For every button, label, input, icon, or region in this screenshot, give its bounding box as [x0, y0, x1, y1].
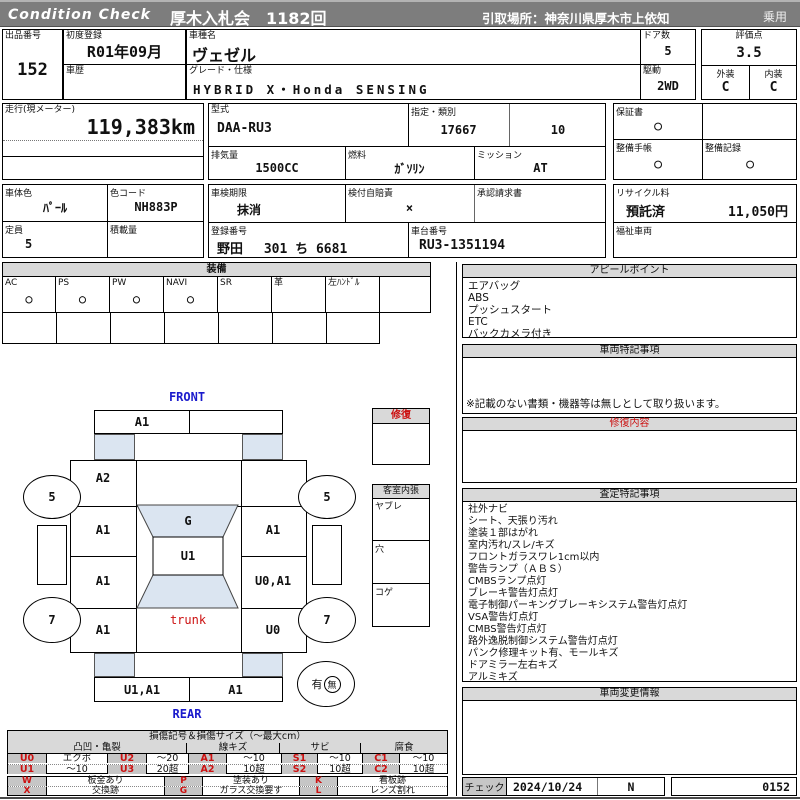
equipment-table: 装備 AC ○ PS ○ PW ○ NAVI ○ SR 革 左ﾊﾝﾄﾞﾙ: [2, 262, 431, 344]
cabin-row-burn: コゲ: [373, 584, 429, 626]
model-name-label: 車種名: [189, 31, 216, 41]
first-registration: R01年09月: [64, 39, 185, 64]
legend-code: U1: [8, 765, 47, 774]
equip-col-pw: PW ○: [110, 277, 164, 313]
front-bumper-left-marks: A1: [95, 411, 189, 433]
damage-legend-table: 損傷記号＆損傷サイズ（～最大cm） 凸凹・亀裂 線キズ サビ 腐食 U0 エクボ…: [7, 730, 448, 774]
legend-group-rust: サビ: [280, 743, 361, 753]
load-label: 積載量: [110, 223, 137, 236]
inspection: 抹消: [237, 201, 261, 218]
doors: 5: [641, 38, 695, 64]
equipment-title: 装備: [2, 262, 431, 277]
transmission: AT: [474, 158, 607, 178]
legend-desc: ガラス交換要す: [203, 787, 300, 795]
legend-desc: 交換跡: [47, 787, 165, 795]
capacity-label: 定員: [5, 223, 23, 236]
appeal-item: ETC: [468, 316, 488, 328]
auction-condition-sheet: Condition Check 厚木入札会 1182回 引取場所：神奈川県厚木市…: [0, 0, 800, 800]
first-registration-cell: 初度登録 R01年09月: [63, 29, 186, 65]
legend-desc: 板金あり: [47, 777, 165, 786]
legend-desc: 20超: [147, 765, 189, 774]
repair-detail-body: [463, 431, 796, 435]
cabin-row-label: コゲ: [375, 585, 393, 598]
equip-value: ○: [3, 285, 55, 312]
wheel-rear-right: 7: [298, 597, 356, 643]
lot-number-cell: 出品番号 152: [2, 29, 63, 100]
model-name-cell: 車種名 ヴェゼル: [186, 29, 641, 65]
legend-desc: エクボ: [47, 754, 108, 763]
auction-venue: 厚木入札会 1182回: [170, 5, 327, 29]
lot-number: 152: [3, 40, 62, 99]
equip-value: [272, 285, 325, 312]
equip-value: [218, 285, 271, 312]
header-bar: Condition Check 厚木入札会 1182回 引取場所：神奈川県厚木市…: [0, 0, 800, 27]
welfare-label: 福祉車両: [616, 224, 652, 237]
column-divider: [456, 262, 457, 796]
wheel-depth: 5: [323, 490, 330, 504]
bottom-rule: [0, 797, 800, 799]
wheel-depth: 7: [323, 613, 330, 627]
rear-pillar-right: [242, 653, 283, 677]
legend-code: U0: [8, 754, 47, 763]
approval-label: 承認請求書: [477, 186, 522, 199]
doors-cell: ドア数 5: [641, 29, 696, 65]
legend-desc: 10超: [227, 765, 282, 774]
grade-cell: グレード・仕様 HYBRID X・Honda SENSING: [186, 65, 641, 100]
check-row-box: チェック 2024/10/24 N: [462, 777, 665, 796]
appeal-item: ABS: [468, 292, 489, 304]
check-date: 2024/10/24: [507, 778, 598, 795]
vehicle-notes-title: 車両特記事項: [463, 345, 796, 358]
front-label: FRONT: [169, 390, 205, 404]
legend-desc: ～10: [318, 754, 363, 763]
maintenance-book: ○: [614, 152, 702, 176]
legend-group-corrosion: 腐食: [361, 743, 447, 753]
grade-label: グレード・仕様: [189, 66, 252, 76]
fuel: ｶﾞｿﾘﾝ: [345, 158, 474, 178]
mirror-left: [37, 525, 67, 585]
equip-col-ac: AC ○: [2, 277, 56, 313]
legend-code: G: [165, 787, 203, 795]
score: 3.5: [702, 41, 796, 65]
cabin-interior-title: 客室内張: [373, 485, 429, 499]
cabin-row-tear: ヤブレ: [373, 498, 429, 541]
legend-desc: 看板跡: [338, 777, 447, 786]
legend-code: C1: [363, 754, 400, 763]
class-designation: 17667: [408, 118, 509, 142]
vehicle-category: 乗用: [763, 8, 787, 25]
cabin-row-hole: 穴: [373, 541, 429, 584]
legend-code: S2: [282, 765, 318, 774]
front-bumper: A1: [94, 410, 283, 434]
legend-code: C2: [363, 765, 400, 774]
assessment-item: 電子制御パーキングブレーキシステム警告灯点灯: [468, 600, 687, 611]
spare-no-circled: 無: [324, 676, 341, 693]
wheel-depth: 7: [48, 613, 55, 627]
front-pillar-left: [94, 434, 135, 460]
color-box: 車体色 ﾊﾟｰﾙ 色コード NH883P 定員 5 積載量: [2, 184, 204, 258]
check-number-box: 0152: [671, 777, 797, 796]
legend-code: P: [165, 777, 203, 786]
left-door-front-marks: A1: [96, 523, 110, 537]
capacity: 5: [25, 237, 32, 251]
spare-tire-indicator: 有無: [297, 661, 355, 707]
equip-col-leather: 革: [272, 277, 326, 313]
assessment-item: 室内汚れ/スレ/キズ: [468, 540, 555, 551]
registration-box: 車検期限 抹消 検付自賠責 × 承認請求書 登録番号 野田 301 ち 6681…: [208, 184, 606, 258]
appeal-item: バックカメラ付き: [468, 328, 552, 340]
legend-code: L: [300, 787, 338, 795]
legend-code: S1: [282, 754, 318, 763]
wheel-rear-left: 7: [23, 597, 81, 643]
legend-desc: ～10: [227, 754, 282, 763]
spare-yes-label: 有: [312, 676, 323, 692]
legend-code: X: [8, 787, 47, 795]
assessment-item: ブレーキ警告灯点灯: [468, 588, 558, 599]
legend-code: U3: [108, 765, 147, 774]
mileage-box: 走行(現メーター) 119,383km: [2, 103, 204, 180]
legend-code: A1: [189, 754, 227, 763]
history-label: 車歴: [66, 66, 84, 76]
exterior-grade: C: [702, 77, 749, 97]
rear-label: REAR: [173, 707, 202, 721]
equip-col-sr: SR: [218, 277, 272, 313]
assessment-item: パンク修理キット有、モールキズ: [468, 648, 619, 659]
mileage-label: 走行(現メーター): [5, 105, 75, 115]
front-bumper-right-marks: [189, 411, 282, 433]
equip-value: [326, 285, 379, 312]
rear-pillar-left: [94, 653, 135, 677]
assessment-notes-title: 査定特記事項: [463, 489, 796, 502]
brand-logo: Condition Check: [8, 7, 151, 23]
appeal-item: エアバッグ: [468, 280, 520, 292]
interior-grade: C: [750, 77, 797, 97]
assessment-item: ドアミラー左右キズ: [468, 660, 558, 671]
recycle-status: 預託済: [626, 201, 665, 220]
assessment-item: アルミキズ: [468, 672, 518, 683]
change-info-body: [463, 701, 796, 705]
reg-no: 野田 301 ち 6681: [217, 238, 347, 257]
assessment-item: VSA警告灯点灯: [468, 612, 538, 623]
chassis-label: 車台番号: [411, 224, 447, 237]
color-code: NH883P: [107, 196, 205, 218]
repair-flag-title: 修復: [373, 409, 429, 424]
rear-bumper: U1,A1 A1: [94, 677, 283, 702]
check-number: 0152: [762, 780, 790, 794]
wheel-front-right: 5: [298, 475, 356, 519]
legend-code: W: [8, 777, 47, 786]
rear-bumper-right-marks: A1: [189, 678, 282, 701]
equip-col-lhd: 左ﾊﾝﾄﾞﾙ: [326, 277, 380, 313]
mileage: 119,383km: [3, 115, 195, 139]
legend-desc: 10超: [400, 765, 447, 774]
change-info-title: 車両変更情報: [463, 688, 796, 701]
body-color: ﾊﾟｰﾙ: [3, 196, 107, 218]
cabin-interior-box: 客室内張 ヤブレ 穴 コゲ: [372, 484, 430, 627]
wheel-front-left: 5: [23, 475, 81, 519]
recycle-box: リサイクル料 預託済 11,050円 福祉車両: [613, 184, 797, 258]
chassis: RU3-1351194: [419, 238, 505, 253]
assessment-item: CMBSランプ点灯: [468, 576, 546, 587]
model-code-label: 型式: [211, 105, 229, 115]
left-fender-marks: A2: [96, 471, 110, 485]
equip-col-extra: [380, 277, 431, 313]
model-name: ヴェゼル: [192, 42, 256, 66]
legend-group-scratch: 線キズ: [187, 743, 280, 753]
pickup-location: 引取場所：神奈川県厚木市上依知: [482, 8, 670, 27]
equip-value: ○: [164, 285, 217, 312]
displacement: 1500CC: [209, 158, 345, 178]
mirror-right: [312, 525, 342, 585]
cabin-row-label: ヤブレ: [375, 499, 402, 512]
class-label: 指定・類別: [411, 105, 456, 118]
class-category: 10: [509, 118, 607, 142]
legend-desc: 10超: [318, 765, 363, 774]
appeal-points-section: アピールポイント エアバッグ ABS プッシュスタート ETC バックカメラ付き: [462, 264, 797, 338]
repair-flag-box: 修復: [372, 408, 430, 465]
check-label: チェック: [463, 778, 507, 795]
equip-empty-row: [2, 313, 380, 344]
appeal-item: プッシュスタート: [468, 304, 552, 316]
recycle-fee: 11,050円: [728, 201, 788, 220]
legend-code: A2: [189, 765, 227, 774]
reg-no-label: 登録番号: [211, 224, 247, 237]
assessment-item: 社外ナビ: [468, 504, 508, 515]
assessment-item: CMBS警告灯点灯: [468, 624, 547, 635]
wheel-depth: 5: [48, 490, 55, 504]
trunk-label: trunk: [170, 613, 206, 627]
assessment-item: 塗装１部はがれ: [468, 528, 538, 539]
score-box: 評価点 3.5 外装 C 内装 C: [701, 29, 797, 100]
assessment-notes-section: 査定特記事項 社外ナビ シート、天張り汚れ 塗装１部はがれ 室内汚れ/スレ/キズ…: [462, 488, 797, 682]
left-door-rear-marks: A1: [96, 574, 110, 588]
insurance: ×: [345, 198, 474, 218]
change-info-section: 車両変更情報: [462, 687, 797, 775]
legend-code: U2: [108, 754, 147, 763]
right-door-front-marks: A1: [266, 523, 280, 537]
appeal-points-title: アピールポイント: [463, 265, 796, 278]
equip-col-navi: NAVI ○: [164, 277, 218, 313]
inspection-label: 車検期限: [211, 186, 247, 199]
legend-desc: ～10: [47, 765, 108, 774]
assessment-item: 路外逸脱制御システム警告灯点灯: [468, 636, 618, 647]
legend-group-dent: 凸凹・亀裂: [8, 743, 187, 753]
assessment-item: シート、天張り汚れ: [468, 516, 558, 527]
cabin-row-label: 穴: [375, 542, 384, 555]
equip-value: ○: [56, 285, 109, 312]
legend-code: K: [300, 777, 338, 786]
appeal-points-list: エアバッグ ABS プッシュスタート ETC バックカメラ付き: [463, 278, 796, 342]
drive: 2WD: [641, 73, 695, 99]
legend-desc: レンズ割れ: [338, 787, 447, 795]
vehicle-notes-disclaimer: ※記載のない書類・機器等は無しとして取り扱います。: [466, 396, 725, 411]
engine-box: 型式 DAA-RU3 指定・類別 17667 10 排気量 1500CC 燃料 …: [208, 103, 606, 180]
check-flag: N: [598, 778, 664, 795]
warranty: ○: [614, 114, 702, 138]
grade: HYBRID X・Honda SENSING: [193, 79, 430, 98]
front-pillar-right: [242, 434, 283, 460]
legend-desc: 塗装あり: [203, 777, 300, 786]
maintenance-record: ○: [702, 152, 798, 176]
assessment-item: フロントガラスワレ1cm以内: [468, 552, 599, 563]
score-label: 評価点: [702, 31, 796, 41]
vehicle-notes-section: 車両特記事項 ※記載のない書類・機器等は無しとして取り扱います。: [462, 344, 797, 414]
rear-bumper-left-marks: U1,A1: [95, 678, 189, 701]
assessment-notes-list: 社外ナビ シート、天張り汚れ 塗装１部はがれ 室内汚れ/スレ/キズ フロントガラ…: [463, 502, 796, 686]
roof-marks: U1: [181, 549, 195, 563]
assessment-item: 警告ランプ（ＡＢＳ）: [468, 564, 568, 575]
repair-legend-table: W 板金あり P 塗装あり K 看板跡 X 交換跡 G ガラス交換要す L レン…: [7, 776, 448, 796]
windshield-marks: G: [184, 514, 191, 528]
drive-cell: 駆動 2WD: [641, 65, 696, 100]
repair-detail-section: 修復内容: [462, 417, 797, 483]
recycle-label: リサイクル料: [616, 186, 670, 199]
history-cell: 車歴: [63, 65, 186, 100]
equip-value: ○: [110, 285, 163, 312]
model-code: DAA-RU3: [217, 121, 272, 136]
equip-col-ps: PS ○: [56, 277, 110, 313]
right-door-rear-marks: U0,A1: [255, 574, 291, 588]
repair-detail-title: 修復内容: [463, 418, 796, 431]
right-quarter-marks: U0: [266, 623, 280, 637]
left-quarter-marks: A1: [96, 623, 110, 637]
documents-box: 保証書 ○ 整備手帳 ○ 整備記録 ○: [613, 103, 797, 180]
legend-desc: ～20: [147, 754, 189, 763]
legend-desc: ～10: [400, 754, 447, 763]
equip-value: [380, 285, 430, 312]
